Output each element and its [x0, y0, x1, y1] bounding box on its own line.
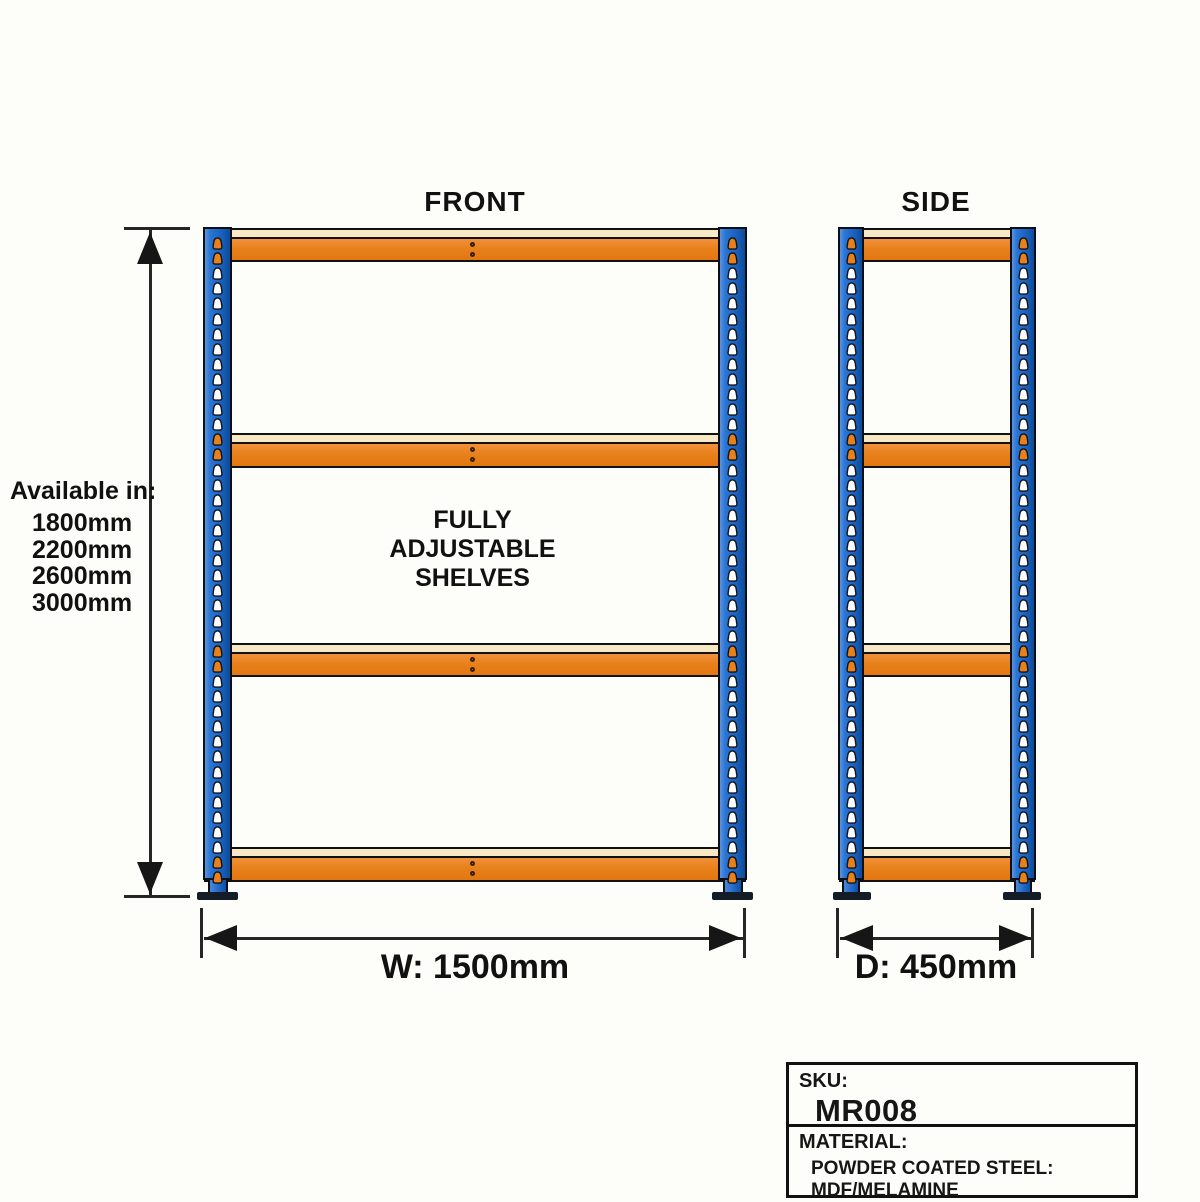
- front-shelf: [204, 643, 746, 677]
- dimension-tick: [124, 895, 190, 898]
- side-shelf: [839, 228, 1035, 262]
- shelf-beam: [841, 654, 1033, 675]
- shelf-beam: [841, 239, 1033, 260]
- foot-base-plate: [833, 892, 871, 900]
- arrowhead-up-icon: [137, 232, 163, 264]
- upright-hole: [846, 871, 857, 889]
- sku-value: MR008: [815, 1093, 1135, 1129]
- adjustable-shelves-note: FULLY ADJUSTABLE SHELVES: [350, 506, 595, 593]
- dimension-tick: [200, 908, 203, 958]
- shelf-beam: [841, 858, 1033, 880]
- foot-base-plate: [197, 892, 238, 900]
- rivet-dot: [470, 667, 475, 672]
- side-left-upright: [838, 227, 864, 880]
- shelf-beam: [206, 444, 744, 466]
- shelf-beam: [841, 444, 1033, 466]
- shelf-board-edge: [841, 230, 1033, 239]
- width-label: W: 1500mm: [355, 948, 595, 987]
- front-view-title: FRONT: [355, 186, 595, 218]
- dimension-tick: [743, 908, 746, 958]
- height-option: 3000mm: [10, 590, 170, 617]
- note-line: FULLY: [350, 506, 595, 535]
- upright-hole: [1018, 871, 1029, 889]
- note-line: SHELVES: [350, 564, 595, 593]
- upright-hole: [727, 871, 738, 889]
- front-left-upright: [203, 227, 232, 880]
- rivet-dot: [470, 871, 475, 876]
- rivet-dot: [470, 252, 475, 257]
- height-option: 1800mm: [10, 510, 170, 537]
- arrowhead-right-icon: [709, 925, 741, 951]
- shelf-board-edge: [206, 435, 744, 444]
- sku-heading: SKU:: [799, 1070, 1135, 1093]
- shelf-beam: [206, 239, 744, 260]
- rivet-dot: [470, 447, 475, 452]
- material-value: POWDER COATED STEEL: MDF/MELAMINE: [811, 1158, 1135, 1202]
- shelf-board-edge: [206, 230, 744, 239]
- shelf-board-edge: [206, 849, 744, 858]
- available-heights: Available in: 1800mm 2200mm 2600mm 3000m…: [10, 477, 170, 616]
- shelf-board-edge: [841, 849, 1033, 858]
- side-shelf: [839, 847, 1035, 882]
- sku-section: SKU: MR008: [789, 1065, 1135, 1127]
- product-info-box: SKU: MR008 MATERIAL: POWDER COATED STEEL…: [786, 1062, 1138, 1198]
- side-view-title: SIDE: [836, 186, 1036, 218]
- rivet-dot: [470, 657, 475, 662]
- material-section: MATERIAL: POWDER COATED STEEL: MDF/MELAM…: [789, 1127, 1135, 1202]
- note-line: ADJUSTABLE: [350, 535, 595, 564]
- front-shelf: [204, 433, 746, 468]
- rivet-dot: [470, 242, 475, 247]
- depth-label: D: 450mm: [816, 948, 1056, 987]
- available-heading: Available in:: [10, 477, 170, 506]
- shelf-beam: [206, 654, 744, 675]
- shelf-board-edge: [206, 645, 744, 654]
- height-option: 2600mm: [10, 563, 170, 590]
- foot-base-plate: [712, 892, 753, 900]
- side-shelf: [839, 433, 1035, 468]
- shelf-board-edge: [841, 645, 1033, 654]
- front-right-upright: [718, 227, 747, 880]
- height-option: 2200mm: [10, 537, 170, 564]
- rivet-dot: [470, 861, 475, 866]
- shelf-board-edge: [841, 435, 1033, 444]
- dimension-tick: [124, 227, 190, 230]
- front-shelf: [204, 228, 746, 262]
- front-shelf: [204, 847, 746, 882]
- arrowhead-down-icon: [137, 862, 163, 894]
- side-right-upright: [1010, 227, 1036, 880]
- upright-hole: [212, 871, 223, 889]
- material-heading: MATERIAL:: [799, 1131, 1135, 1154]
- arrowhead-left-icon: [205, 925, 237, 951]
- shelf-beam: [206, 858, 744, 880]
- rivet-dot: [470, 457, 475, 462]
- foot-base-plate: [1003, 892, 1041, 900]
- dimension-line: [204, 937, 744, 940]
- side-shelf: [839, 643, 1035, 677]
